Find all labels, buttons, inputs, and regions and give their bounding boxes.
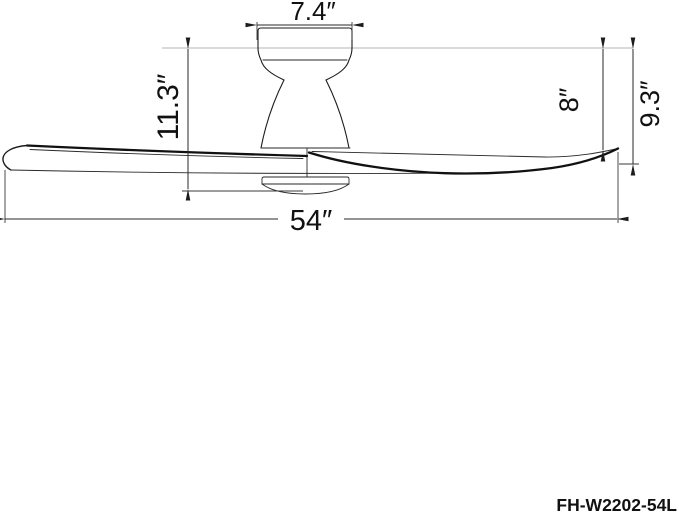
fan-dimension-diagram: 7.4″ 11.3″ 8″ 9.3″ 54″ FH-W2202-54L: [0, 0, 679, 517]
overall-height-label: 9.3″: [635, 80, 665, 128]
blade-sweep-label: 54″: [290, 205, 333, 237]
model-number-label: FH-W2202-54L: [556, 495, 677, 515]
fan-outline: [3, 28, 618, 194]
canopy: [258, 28, 352, 80]
left-blade-underside: [11, 170, 437, 173]
right-blade-top-edge: [312, 149, 618, 158]
canopy-width-label: 7.4″: [290, 0, 335, 26]
light-kit-body: [262, 177, 349, 184]
blade-top-height-label: 8″: [554, 87, 584, 112]
motor-housing-left: [261, 80, 284, 148]
left-blade-tip: [3, 146, 27, 171]
housing-height-label: 11.3″: [152, 73, 185, 140]
dimension-lines: [5, 25, 633, 219]
diagram-canvas: 7.4″ 11.3″ 8″ 9.3″ 54″ FH-W2202-54L: [0, 0, 679, 517]
motor-housing-right: [326, 80, 349, 148]
light-kit-lens: [262, 184, 349, 194]
